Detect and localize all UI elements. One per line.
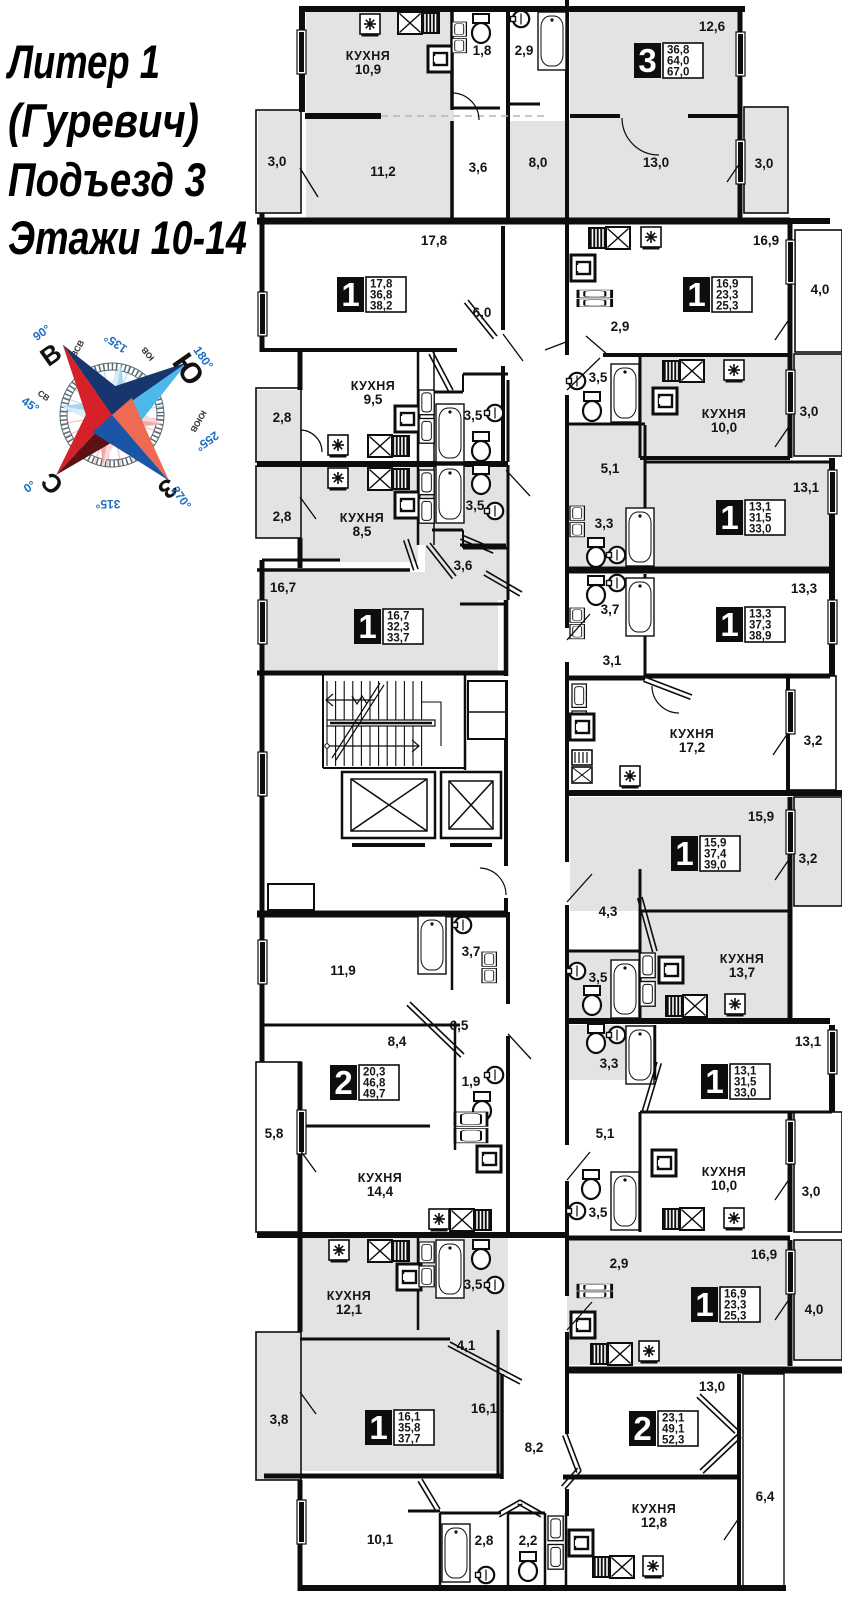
svg-text:10,1: 10,1	[367, 1532, 394, 1547]
svg-text:33,0: 33,0	[734, 1088, 756, 1100]
svg-text:4,3: 4,3	[599, 904, 618, 919]
svg-text:3,0: 3,0	[268, 154, 287, 169]
svg-text:8,4: 8,4	[388, 1034, 407, 1049]
svg-text:5,1: 5,1	[596, 1126, 615, 1141]
svg-text:1: 1	[695, 1286, 713, 1323]
svg-text:1: 1	[341, 276, 359, 313]
svg-text:67,0: 67,0	[667, 67, 689, 79]
svg-text:1: 1	[687, 276, 705, 313]
svg-text:КУХНЯ: КУХНЯ	[346, 49, 391, 63]
svg-text:13,3: 13,3	[791, 581, 818, 596]
svg-text:2,2: 2,2	[519, 1533, 538, 1548]
svg-text:КУХНЯ: КУХНЯ	[340, 511, 385, 525]
svg-text:38,2: 38,2	[370, 301, 392, 313]
svg-text:2,9: 2,9	[611, 319, 630, 334]
svg-text:16,9: 16,9	[753, 233, 779, 248]
svg-text:КУХНЯ: КУХНЯ	[702, 1165, 747, 1179]
svg-text:КУХНЯ: КУХНЯ	[670, 727, 715, 741]
svg-text:13,7: 13,7	[729, 965, 755, 980]
svg-text:11,9: 11,9	[330, 963, 356, 978]
svg-text:13,0: 13,0	[699, 1379, 725, 1394]
svg-text:3,0: 3,0	[755, 156, 774, 171]
svg-text:3,8: 3,8	[270, 1412, 289, 1427]
svg-text:16,9: 16,9	[751, 1247, 777, 1262]
svg-text:6,0: 6,0	[473, 305, 492, 320]
svg-text:2: 2	[633, 1410, 651, 1447]
svg-text:3,5: 3,5	[589, 370, 608, 385]
svg-text:1: 1	[358, 608, 376, 645]
svg-text:1: 1	[675, 835, 693, 872]
svg-text:3,2: 3,2	[799, 851, 818, 866]
svg-text:3,0: 3,0	[800, 404, 819, 419]
svg-text:6,5: 6,5	[450, 1018, 469, 1033]
svg-text:1: 1	[720, 606, 738, 643]
svg-text:12,8: 12,8	[641, 1515, 668, 1530]
svg-text:52,3: 52,3	[662, 1435, 684, 1447]
svg-text:2,9: 2,9	[610, 1256, 629, 1271]
svg-text:Литер 1: Литер 1	[6, 35, 160, 88]
svg-text:3,3: 3,3	[595, 516, 614, 531]
svg-text:(Гуревич): (Гуревич)	[8, 94, 199, 147]
svg-text:13,1: 13,1	[793, 480, 820, 495]
svg-text:КУХНЯ: КУХНЯ	[720, 952, 765, 966]
svg-text:13,1: 13,1	[795, 1034, 822, 1049]
svg-text:25,3: 25,3	[724, 1311, 746, 1323]
svg-text:3,5: 3,5	[464, 408, 483, 423]
svg-text:12,6: 12,6	[699, 19, 726, 34]
svg-text:3,6: 3,6	[469, 160, 488, 175]
svg-text:3,2: 3,2	[804, 733, 823, 748]
svg-text:3,0: 3,0	[802, 1184, 821, 1199]
svg-text:6,4: 6,4	[756, 1489, 775, 1504]
svg-text:33,7: 33,7	[387, 633, 409, 645]
svg-text:2: 2	[334, 1064, 352, 1101]
svg-text:5,1: 5,1	[601, 461, 620, 476]
svg-text:39,0: 39,0	[704, 860, 726, 872]
svg-text:2,9: 2,9	[515, 43, 534, 58]
svg-text:2,8: 2,8	[273, 509, 292, 524]
svg-text:11,2: 11,2	[370, 164, 396, 179]
svg-text:17,8: 17,8	[421, 233, 448, 248]
svg-text:17,2: 17,2	[679, 740, 705, 755]
svg-text:3: 3	[638, 42, 656, 79]
svg-text:37,7: 37,7	[398, 1434, 420, 1446]
svg-text:3,5: 3,5	[589, 1205, 608, 1220]
svg-text:3,6: 3,6	[454, 558, 473, 573]
svg-text:5,8: 5,8	[265, 1126, 284, 1141]
svg-text:12,1: 12,1	[336, 1302, 363, 1317]
svg-text:9,5: 9,5	[364, 392, 383, 407]
svg-text:33,0: 33,0	[749, 524, 771, 536]
svg-text:3,1: 3,1	[603, 653, 622, 668]
svg-text:3,5: 3,5	[589, 970, 608, 985]
svg-text:13,0: 13,0	[643, 155, 669, 170]
svg-text:10,9: 10,9	[355, 62, 381, 77]
svg-text:1,8: 1,8	[473, 43, 492, 58]
svg-text:4,0: 4,0	[805, 1302, 824, 1317]
svg-text:Этажи 10-14: Этажи 10-14	[8, 211, 247, 264]
svg-text:3,7: 3,7	[601, 602, 620, 617]
svg-text:3,5: 3,5	[466, 498, 485, 513]
svg-text:8,2: 8,2	[525, 1440, 544, 1455]
svg-text:4,1: 4,1	[457, 1338, 476, 1353]
svg-text:49,7: 49,7	[363, 1089, 385, 1101]
svg-text:2,8: 2,8	[475, 1533, 494, 1548]
svg-text:1: 1	[369, 1409, 387, 1446]
svg-text:8,5: 8,5	[353, 524, 372, 539]
svg-text:4,0: 4,0	[811, 282, 830, 297]
svg-text:3,7: 3,7	[462, 944, 481, 959]
svg-text:КУХНЯ: КУХНЯ	[358, 1171, 403, 1185]
svg-text:КУХНЯ: КУХНЯ	[327, 1289, 372, 1303]
svg-text:3,5: 3,5	[464, 1277, 483, 1292]
svg-text:3,3: 3,3	[600, 1056, 619, 1071]
svg-text:КУХНЯ: КУХНЯ	[632, 1502, 677, 1516]
svg-text:КУХНЯ: КУХНЯ	[351, 379, 396, 393]
svg-text:10,0: 10,0	[711, 420, 737, 435]
svg-text:10,0: 10,0	[711, 1178, 737, 1193]
svg-text:Подъезд 3: Подъезд 3	[8, 153, 206, 206]
svg-text:16,7: 16,7	[270, 580, 296, 595]
svg-text:1: 1	[720, 499, 738, 536]
svg-text:38,9: 38,9	[749, 631, 771, 643]
svg-text:14,4: 14,4	[367, 1184, 394, 1199]
svg-text:315°: 315°	[95, 497, 120, 511]
svg-text:8,0: 8,0	[529, 155, 548, 170]
svg-text:16,1: 16,1	[471, 1401, 498, 1416]
svg-text:25,3: 25,3	[716, 301, 738, 313]
svg-text:15,9: 15,9	[748, 809, 774, 824]
svg-text:1,9: 1,9	[462, 1074, 481, 1089]
svg-text:2,8: 2,8	[273, 410, 292, 425]
svg-text:1: 1	[705, 1063, 723, 1100]
svg-text:КУХНЯ: КУХНЯ	[702, 407, 747, 421]
